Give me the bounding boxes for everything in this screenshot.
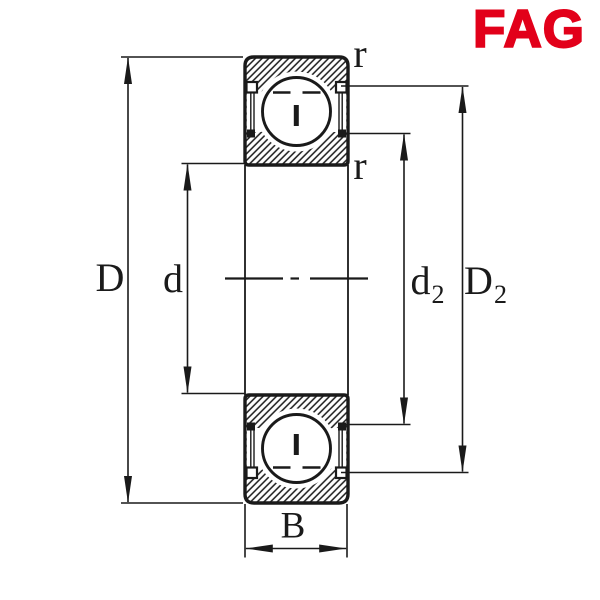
label-outer-shoulder-D2: D2: [464, 261, 506, 301]
label-inner-shoulder-d2: d2: [411, 261, 444, 301]
bearing-section-top: [245, 57, 348, 165]
label-bore-diameter-d: d: [163, 259, 183, 299]
label-outer-diameter-D: D: [96, 258, 125, 298]
label-chamfer-radius-bottom: r: [353, 146, 366, 186]
fag-logo: FAG: [473, 3, 585, 56]
label-chamfer-radius-top: r: [353, 34, 366, 74]
bearing-section-bottom: [245, 395, 348, 503]
label-width-B: B: [281, 507, 306, 544]
bearing-drawing-page: FAG D d d2 D2 B r r: [0, 0, 600, 600]
